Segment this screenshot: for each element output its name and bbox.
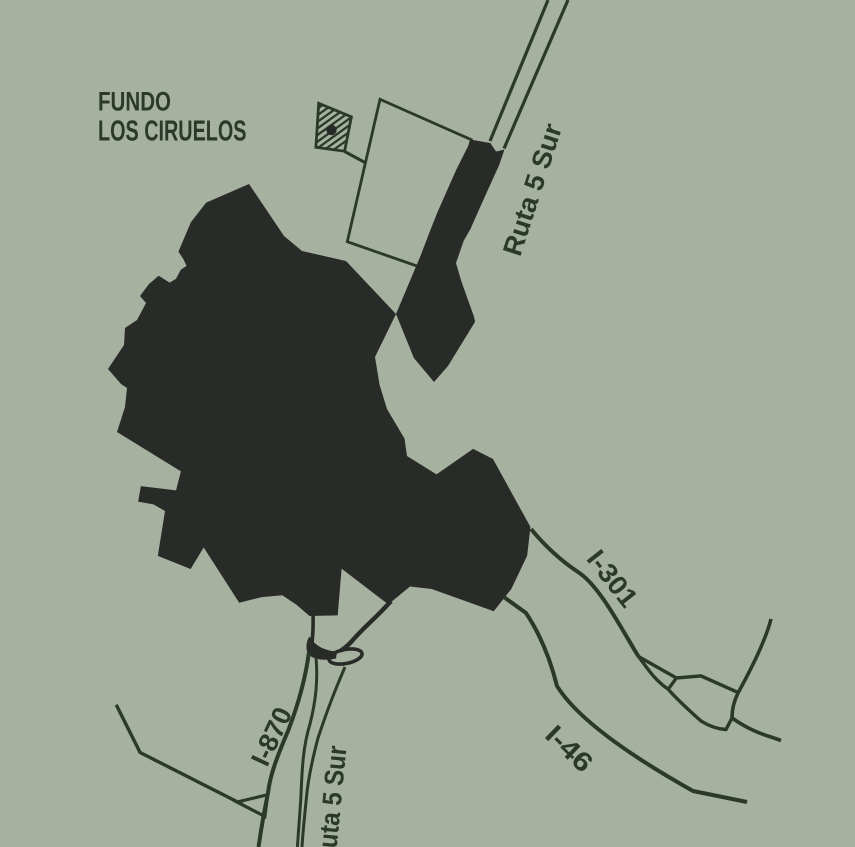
svg-text:FUNDO: FUNDO (98, 87, 171, 117)
svg-text:LOS CIRUELOS: LOS CIRUELOS (98, 115, 247, 147)
